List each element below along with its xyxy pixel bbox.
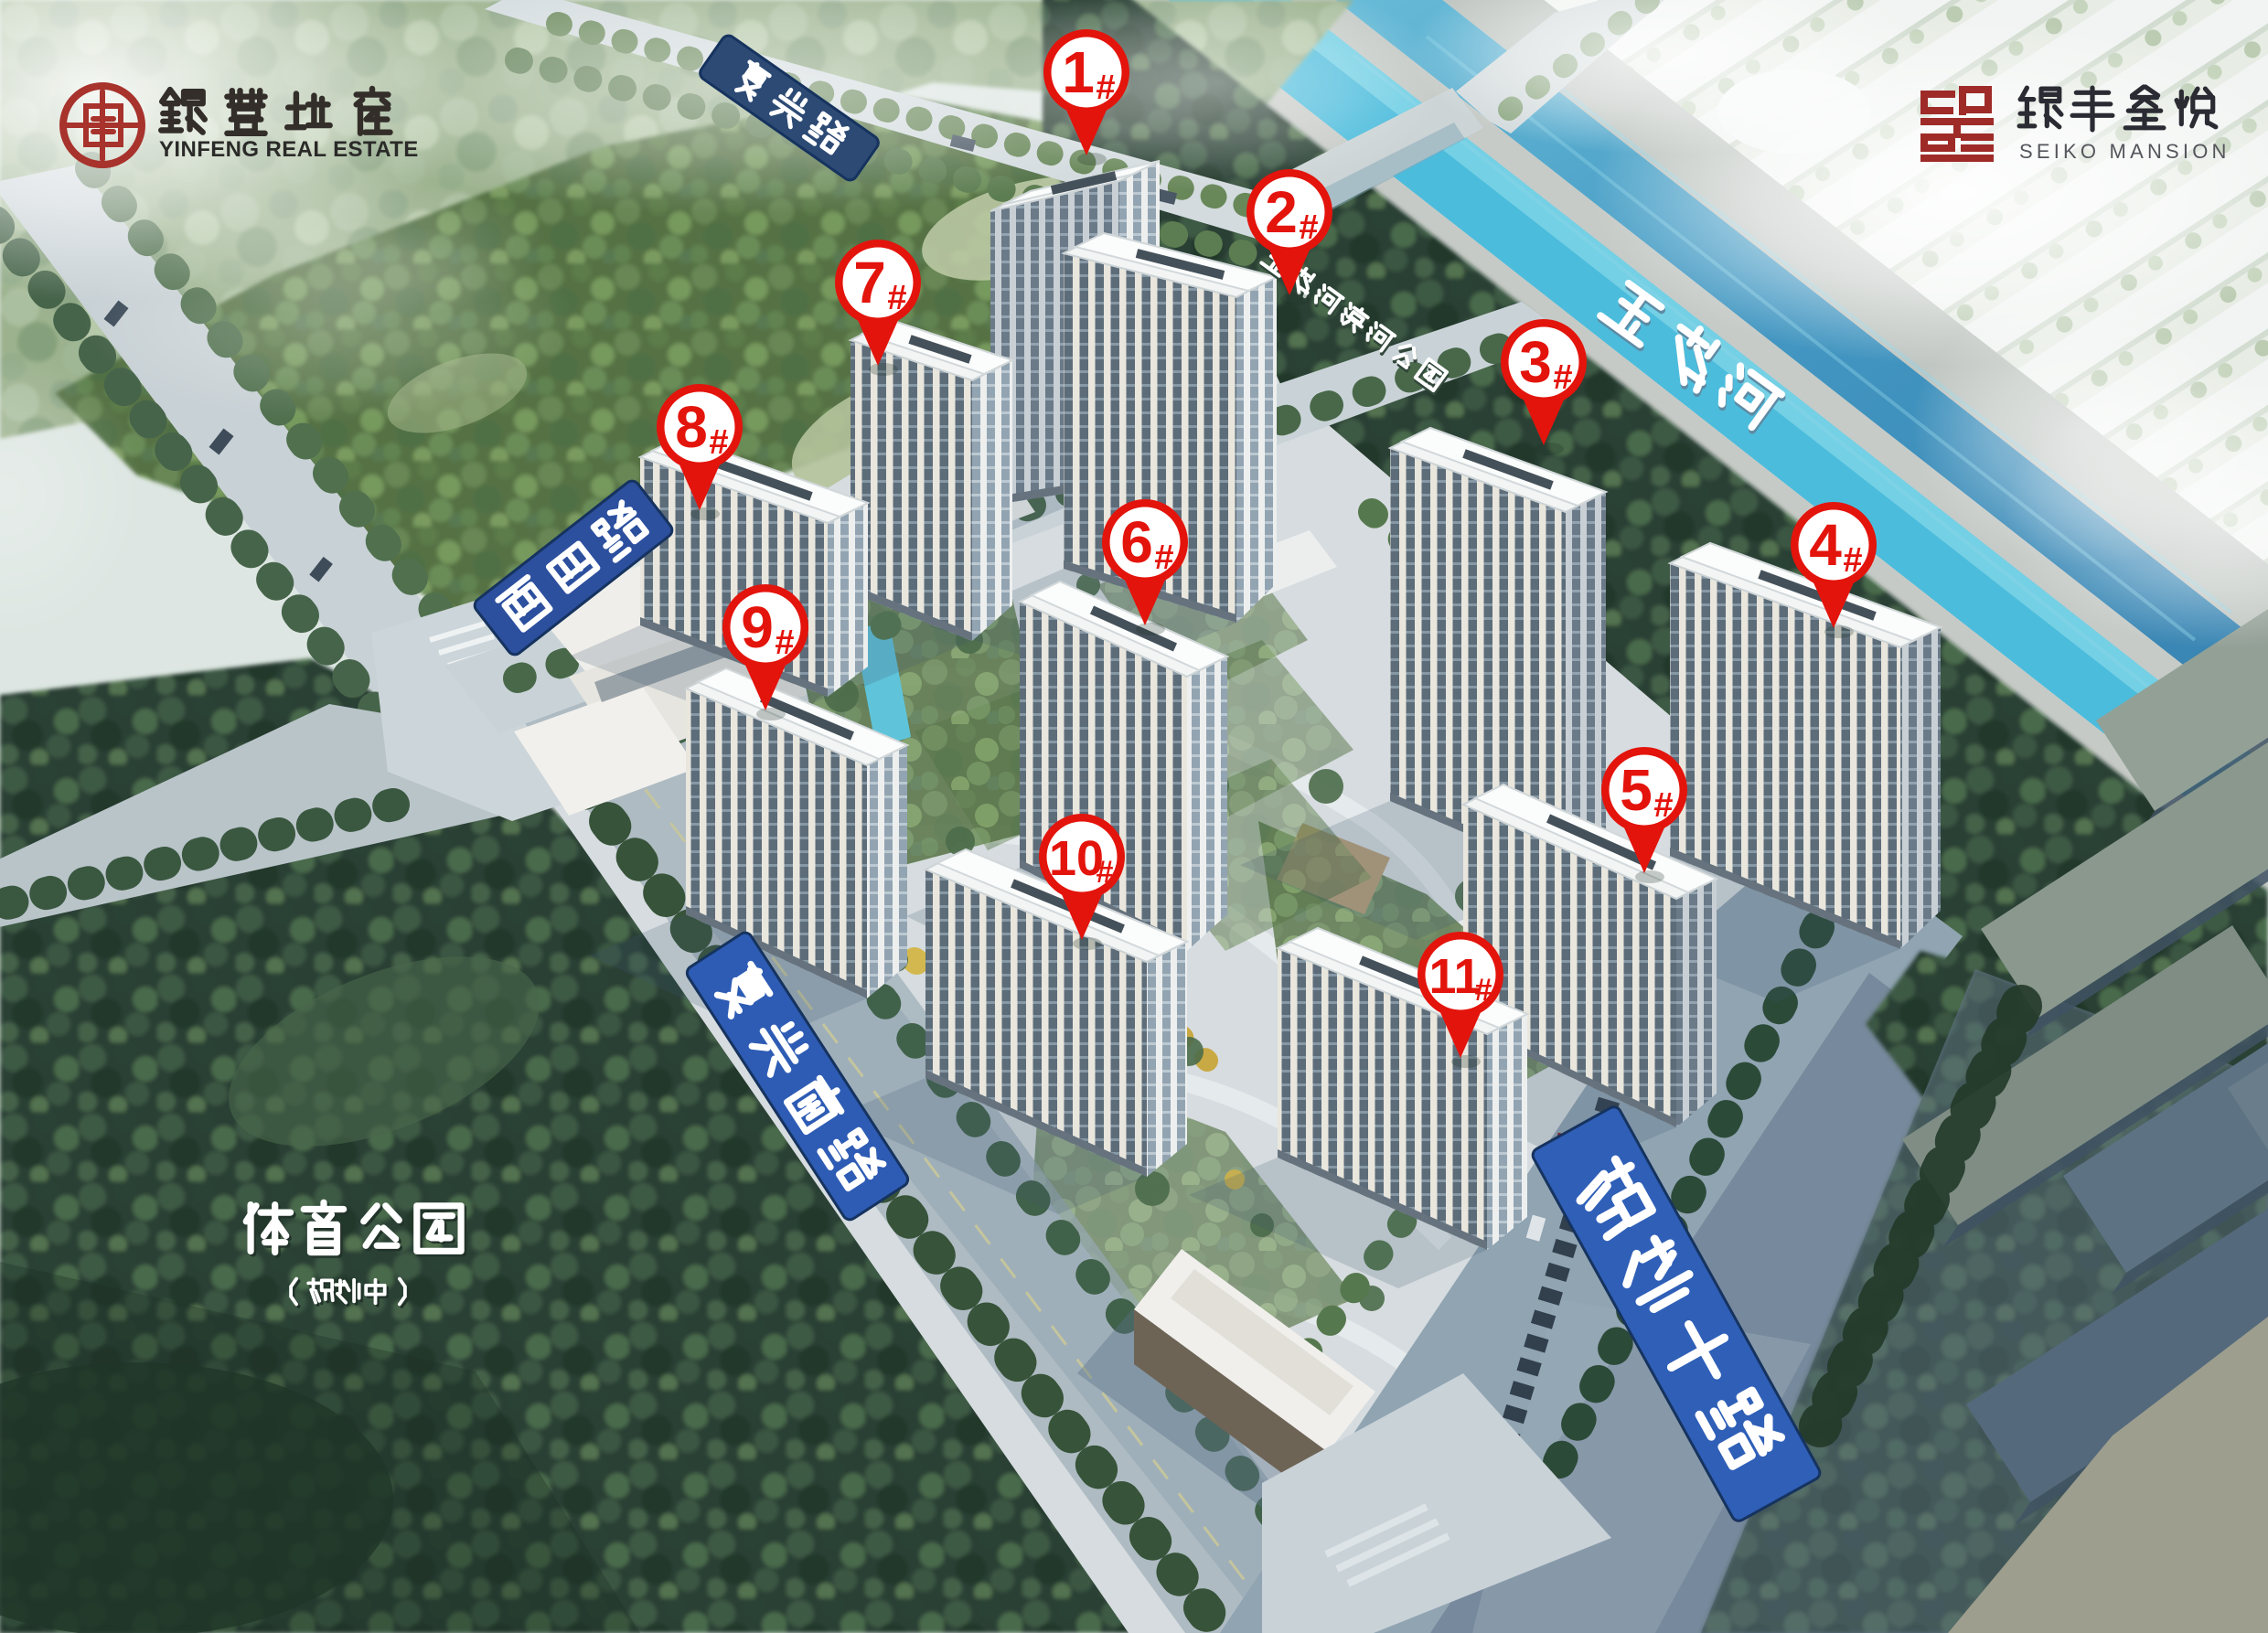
svg-text:6: 6: [1120, 509, 1153, 575]
svg-text:1: 1: [1062, 39, 1095, 105]
svg-text:4: 4: [1809, 512, 1842, 578]
svg-text:5: 5: [1620, 757, 1653, 823]
svg-text:7: 7: [853, 250, 886, 315]
svg-text:#: #: [775, 624, 794, 662]
svg-text:#: #: [1096, 69, 1115, 107]
svg-text:SEIKO MANSION: SEIKO MANSION: [2019, 140, 2231, 163]
svg-text:#: #: [887, 279, 906, 317]
svg-text:#: #: [1299, 208, 1318, 247]
svg-text:#: #: [1843, 541, 1862, 580]
svg-text:#: #: [1097, 855, 1114, 890]
svg-text:#: #: [1653, 786, 1673, 825]
svg-text:8: 8: [675, 394, 708, 460]
svg-text:#: #: [1553, 358, 1572, 397]
svg-text:#: #: [1154, 539, 1173, 577]
svg-text:YINFENG REAL ESTATE: YINFENG REAL ESTATE: [159, 137, 419, 162]
svg-text:3: 3: [1519, 329, 1552, 395]
svg-text:2: 2: [1265, 179, 1298, 245]
svg-text:11: 11: [1428, 949, 1481, 1004]
svg-text:9: 9: [741, 594, 774, 660]
svg-text:#: #: [1475, 973, 1492, 1008]
svg-text:#: #: [709, 423, 728, 462]
